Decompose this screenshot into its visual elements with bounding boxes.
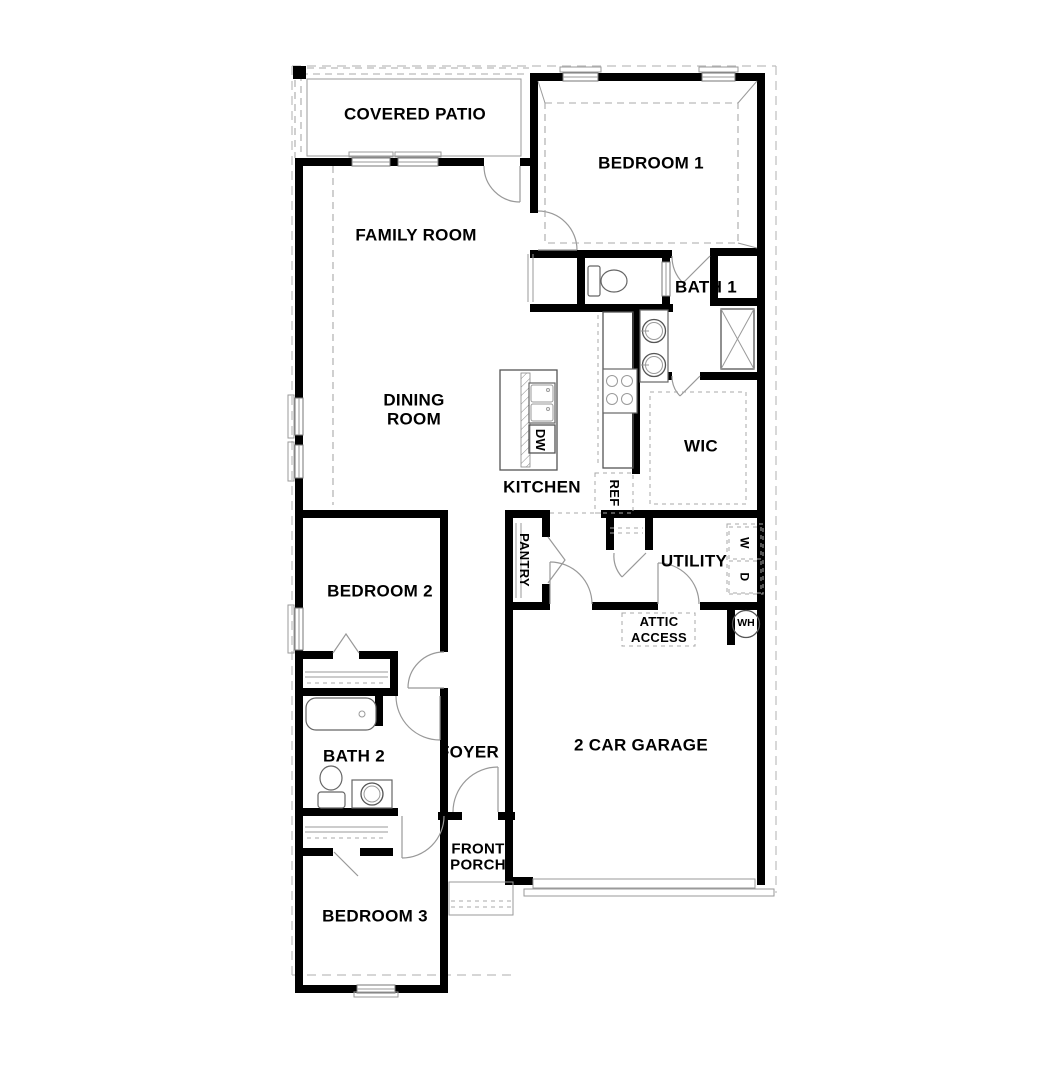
dishwasher-label: DW [532,429,548,451]
toilet-fixture [588,266,627,296]
bath2-door [396,696,440,740]
window [702,73,735,81]
wic-door [672,376,700,396]
patio-post [293,66,306,79]
bedroom2-closet-door [333,634,359,653]
room-label-garage: 2 CAR GARAGE [574,737,708,756]
room-label-covered-patio: COVERED PATIO [344,106,486,125]
window [295,608,303,650]
porch-slab [449,882,513,915]
floor-plan: COVERED PATIO BEDROOM 1 FAMILY ROOM BATH… [0,0,1050,1070]
toilet-fixture [318,766,345,808]
vanity-fixture [352,780,392,808]
room-label-bedroom-1: BEDROOM 1 [598,155,704,174]
pantry-label: PANTRY [516,533,532,587]
attic-access-label: ATTIC ACCESS [631,614,687,647]
utility-closet-door [614,553,646,577]
bedroom2-door [408,652,444,688]
room-label-foyer: FOYER [439,744,499,763]
window [295,398,303,435]
bedroom3-closet-door [334,852,358,876]
room-label-bath-2: BATH 2 [323,748,385,767]
cased-opening [662,262,670,296]
shower-fixture [721,309,754,369]
stove-fixture [603,369,637,413]
patio-door [484,166,520,202]
washer-label: W [737,537,750,549]
room-label-family-room: FAMILY ROOM [355,227,476,246]
hall-garage-door [550,562,592,604]
room-label-bath-1: BATH 1 [675,279,737,298]
room-label-utility: UTILITY [661,553,727,572]
slab-layer [449,879,774,915]
room-label-kitchen: KITCHEN [503,479,581,498]
garage-door-sill [524,889,774,896]
bathtub-fixture [306,698,376,730]
kitchen-counter-fixture [598,312,637,468]
bedroom1-door [538,211,577,250]
refrigerator-label: REF [606,480,622,507]
room-label-bedroom-3: BEDROOM 3 [322,908,428,927]
water-heater-label: WH [737,618,755,630]
dryer-label: D [737,573,750,582]
garage-door [533,879,755,888]
window [563,73,598,81]
room-label-front-porch: FRONT PORCH [450,841,506,873]
front-door [453,767,498,812]
kitchen-island-fixture [500,370,557,470]
room-label-wic: WIC [684,438,718,457]
window [295,445,303,478]
doors-layer [333,166,710,876]
window [398,158,438,166]
room-label-dining-room: DINING ROOM [383,391,444,428]
window [352,158,390,166]
room-label-bedroom-2: BEDROOM 2 [327,583,433,602]
bedroom3-door [402,816,444,858]
double-vanity-fixture [640,310,668,382]
fixtures-layer [306,266,763,808]
